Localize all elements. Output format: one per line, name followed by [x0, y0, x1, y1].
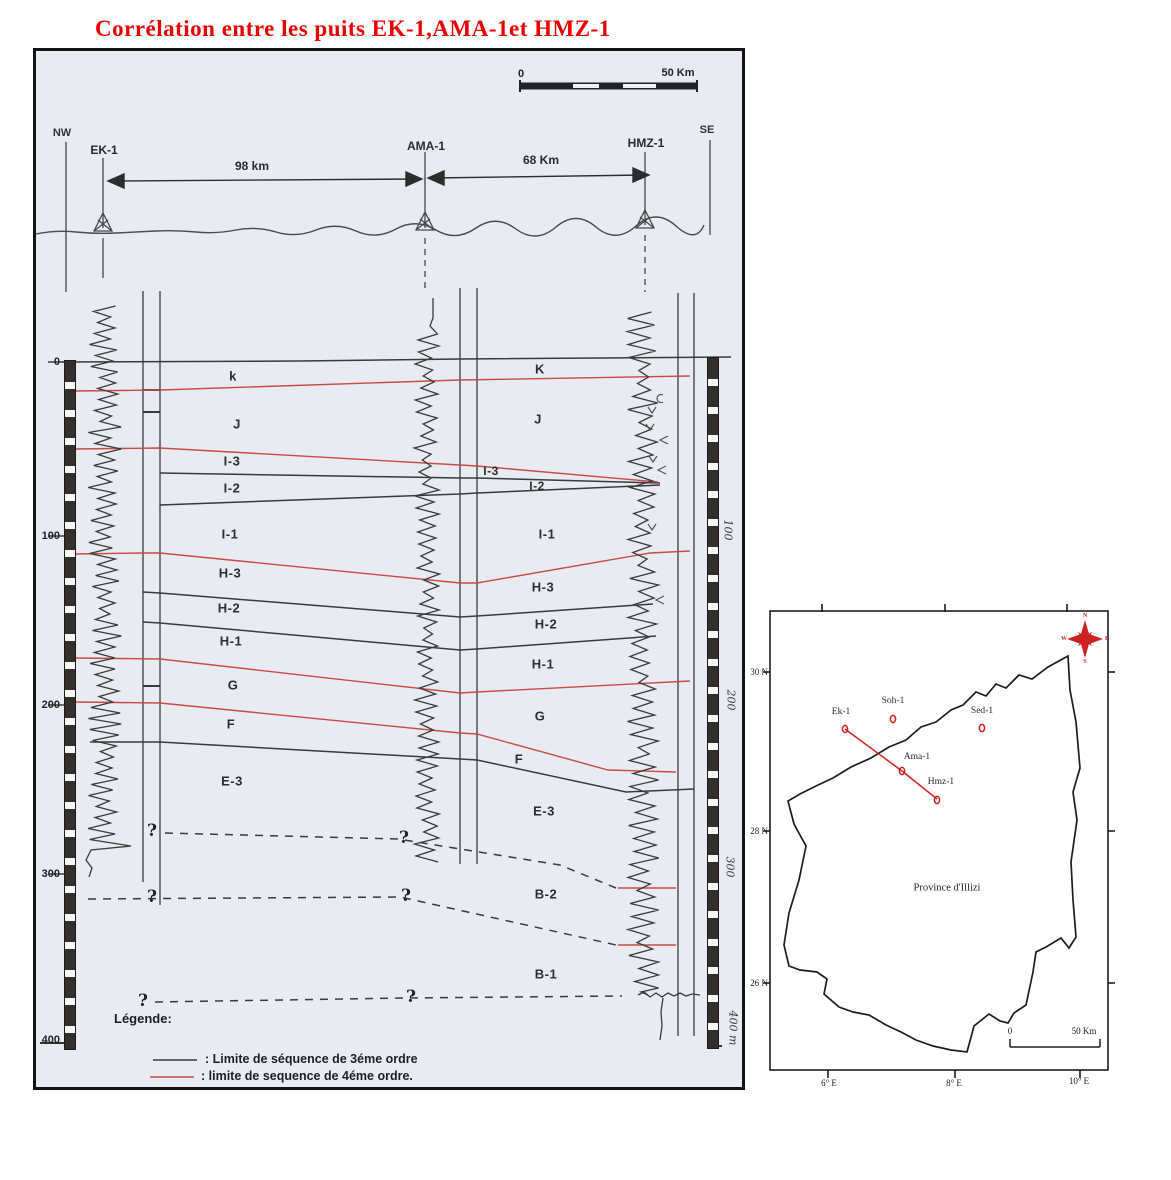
map-scalebar-graphic — [1010, 1039, 1100, 1047]
depth-tick-400: 400 — [42, 1034, 60, 1046]
left-depth-bar — [64, 360, 76, 1050]
province-boundary — [784, 656, 1080, 1052]
well-label-ama1: AMA-1 — [407, 139, 445, 153]
compass-w: W — [1061, 636, 1067, 642]
map-lat-26n: 26 N — [750, 978, 768, 988]
compass-n: N — [1083, 613, 1087, 619]
figure-title: Corrélation entre les puits EK-1,AMA-1et… — [95, 16, 611, 42]
right-depth-100: 100 — [722, 520, 735, 541]
legend-item-3rd-order: : Limite de séquence de 3éme ordre — [205, 1052, 418, 1066]
map-lon-8e: 8° E — [946, 1078, 962, 1088]
map-lon-10e: 10° E — [1069, 1076, 1089, 1086]
zone-label: K — [535, 362, 545, 377]
zone-label: H-2 — [535, 617, 557, 632]
zone-label: F — [515, 752, 523, 767]
zone-label: J — [233, 417, 241, 432]
zone-label: I-3 — [224, 454, 241, 469]
uncertainty-qmark: ? — [406, 987, 416, 1007]
map-lon-6e: 6° E — [821, 1078, 837, 1088]
orientation-nw: NW — [53, 127, 71, 139]
zone-label: I-2 — [529, 479, 545, 493]
distance-ama-hmz: 68 Km — [523, 153, 559, 167]
zone-label: H-1 — [220, 634, 242, 649]
zone-label: H-3 — [532, 580, 554, 595]
map-scalebar-end: 50 Km — [1072, 1026, 1097, 1036]
correlation-panel — [33, 48, 745, 1090]
map-region-label: Province d'Illizi — [914, 883, 981, 894]
zone-label: J — [534, 412, 542, 427]
right-depth-200: 200 — [725, 690, 738, 711]
zone-label: E-3 — [533, 804, 555, 819]
zone-label: H-1 — [532, 657, 554, 672]
zone-label: B-2 — [535, 887, 557, 902]
uncertainty-qmark: ? — [138, 991, 148, 1011]
compass-s: S — [1083, 659, 1086, 665]
zone-label: I-3 — [483, 464, 499, 478]
map-well-ama1: Ama-1 — [904, 752, 930, 762]
right-depth-bar — [707, 357, 719, 1049]
zone-label: B-1 — [535, 967, 557, 982]
uncertainty-qmark: ? — [401, 886, 411, 906]
zone-label: k — [229, 369, 237, 384]
top-scalebar-end: 50 Km — [661, 67, 694, 79]
legend-item-4th-order: : limite de sequence de 4éme ordre. — [201, 1069, 413, 1083]
right-depth-400m: 400 m — [727, 1011, 740, 1046]
zone-label: H-3 — [219, 566, 241, 581]
uncertainty-qmark: ? — [399, 828, 409, 848]
depth-tick-200: 200 — [42, 699, 60, 711]
zone-label: F — [227, 717, 235, 732]
zone-label: I-2 — [224, 481, 241, 496]
zone-label: I-1 — [539, 527, 556, 542]
top-scalebar-zero: 0 — [518, 68, 524, 80]
distance-ek-ama: 98 km — [235, 159, 269, 173]
map-frame — [763, 604, 1115, 1078]
compass-e: E — [1105, 636, 1109, 642]
depth-tick-100: 100 — [42, 530, 60, 542]
zone-label: I-1 — [222, 527, 239, 542]
uncertainty-qmark: ? — [147, 821, 157, 841]
zone-label: G — [535, 709, 546, 724]
legend-title: Légende: — [114, 1011, 172, 1026]
well-label-ek1: EK-1 — [90, 143, 117, 157]
right-depth-300: 300 — [724, 857, 737, 878]
map-well-sed1: Sed-1 — [971, 706, 993, 716]
map-lat-30n: 30 N — [750, 667, 768, 677]
figure-canvas: Corrélation entre les puits EK-1,AMA-1et… — [0, 0, 1171, 1180]
depth-tick-300: 300 — [42, 868, 60, 880]
map-scalebar-zero: 0 — [1008, 1026, 1013, 1036]
map-lat-28n: 28 N — [750, 826, 768, 836]
depth-tick-0: 0 — [54, 356, 60, 368]
zone-label: E-3 — [221, 774, 243, 789]
uncertainty-qmark: ? — [147, 887, 157, 907]
compass-rose-icon — [1067, 620, 1103, 658]
orientation-se: SE — [700, 124, 715, 136]
map-well-ek1: Ek-1 — [832, 707, 850, 717]
well-label-hmz1: HMZ-1 — [628, 136, 665, 150]
zone-label: H-2 — [218, 601, 240, 616]
map-well-soh1: Soh-1 — [882, 696, 905, 706]
zone-label: G — [228, 678, 239, 693]
map-well-hmz1: Hmz-1 — [928, 777, 954, 787]
